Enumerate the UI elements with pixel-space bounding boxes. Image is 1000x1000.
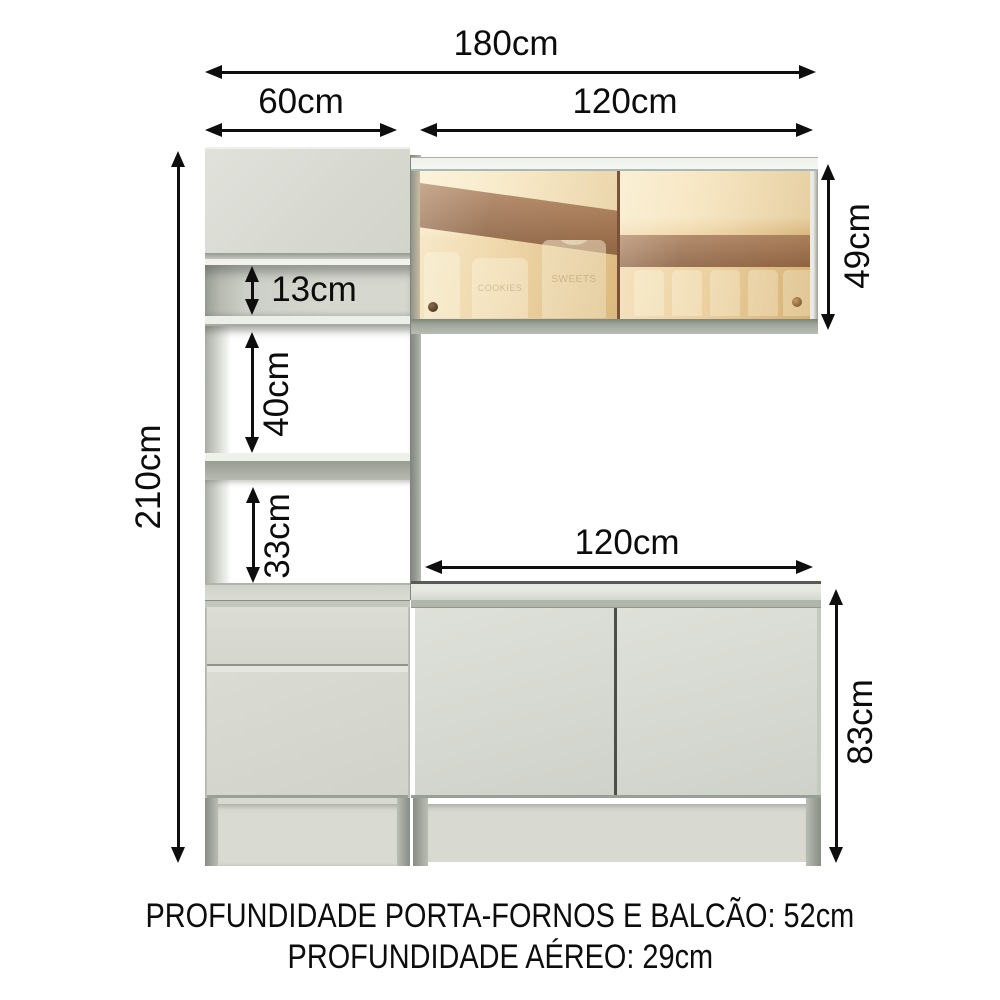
- arrow-line: [213, 71, 808, 74]
- arrowhead-right: [380, 123, 397, 137]
- arrow-line: [213, 129, 389, 132]
- arrowhead-right: [796, 123, 813, 137]
- arrowhead-right: [799, 65, 816, 79]
- tower-drawer-front: [207, 607, 408, 664]
- tower-divider-edge: [205, 453, 410, 461]
- tower-right-leg: [397, 798, 410, 866]
- counter-kickplate: [411, 798, 821, 866]
- footer-depth-text-2: PROFUNDIDADE AÉREO: 29cm: [287, 938, 713, 977]
- tower-kickplate: [205, 798, 410, 866]
- arrow-line: [827, 172, 830, 322]
- counter-door-left: [415, 608, 614, 795]
- label-total-height: 210cm: [129, 424, 169, 529]
- footer-depth-text-1: PROFUNDIDADE PORTA-FORNOS E BALCÃO: 52cm: [146, 897, 855, 936]
- arrowhead-down: [245, 437, 259, 453]
- tower-top-door: [205, 147, 410, 255]
- arrowhead-up: [245, 332, 259, 348]
- arrow-line: [433, 566, 805, 569]
- footer-depth-line-2: PROFUNDIDADE AÉREO: 29cm: [0, 938, 1000, 977]
- counter-right-edge: [817, 608, 821, 795]
- arrowhead-right: [796, 560, 813, 574]
- arrow-line: [252, 495, 255, 575]
- right-door-knob: [792, 297, 802, 307]
- label-small-niche: 13cm: [271, 270, 357, 310]
- arrowhead-down: [171, 847, 185, 863]
- upper-glass-cabinet: COOKIES SWEETS: [411, 157, 818, 334]
- arrow-line: [428, 129, 805, 132]
- arrowhead-left: [425, 560, 442, 574]
- upper-cabinet-bottom-band: [411, 319, 818, 334]
- label-total-width: 180cm: [453, 24, 558, 64]
- tower-kick-panel: [218, 804, 397, 862]
- upper-cabinet-left-frame: [411, 171, 420, 321]
- label-lower-niche: 33cm: [258, 493, 298, 579]
- arrow-line: [177, 159, 180, 855]
- label-upper-width: 120cm: [572, 82, 677, 122]
- tower-base-door: [207, 672, 408, 798]
- left-door-knob: [428, 302, 438, 312]
- tower-left-leg: [205, 798, 218, 866]
- label-counter-width: 120cm: [574, 523, 679, 563]
- arrowhead-up: [821, 164, 835, 180]
- glass-door-left: COOKIES SWEETS: [420, 171, 617, 321]
- tower-lower-niche: [205, 480, 410, 583]
- arrowhead-left: [205, 123, 222, 137]
- glass-sheen: [620, 171, 810, 321]
- arrowhead-left: [205, 65, 222, 79]
- arrow-line: [835, 597, 838, 855]
- arrowhead-down: [821, 314, 835, 330]
- counter-top-band: [411, 600, 821, 608]
- arrowhead-down: [829, 847, 843, 863]
- counter-kick-panel: [428, 804, 806, 862]
- tower-cabinet: [205, 147, 410, 866]
- counter-cabinet: [411, 581, 821, 866]
- countertop: [411, 581, 821, 600]
- glass-sheen: [420, 171, 617, 321]
- counter-left-leg: [413, 798, 428, 866]
- arrowhead-up: [829, 589, 843, 605]
- arrow-line: [251, 340, 254, 445]
- diagram-canvas: COOKIES SWEETS: [0, 0, 1000, 1000]
- counter-doors: [411, 608, 821, 798]
- label-upper-height: 49cm: [838, 203, 878, 289]
- counter-door-right: [617, 608, 817, 795]
- label-middle-niche: 40cm: [257, 351, 297, 437]
- upper-cabinet-right-frame: [810, 171, 818, 321]
- upper-cabinet-glass-row: COOKIES SWEETS: [411, 169, 818, 321]
- arrowhead-up: [245, 266, 259, 282]
- counter-right-leg: [806, 798, 821, 866]
- arrowhead-down: [245, 299, 259, 315]
- glass-door-right: [620, 171, 810, 321]
- label-counter-height: 83cm: [841, 679, 881, 765]
- tower-divider-shelf: [205, 461, 410, 480]
- tower-shelf: [205, 316, 410, 326]
- tower-middle-niche: [205, 326, 410, 453]
- arrowhead-up: [171, 151, 185, 167]
- label-tower-width: 60cm: [258, 82, 344, 122]
- footer-depth-line-1: PROFUNDIDADE PORTA-FORNOS E BALCÃO: 52cm: [0, 897, 1000, 936]
- arrowhead-left: [420, 123, 437, 137]
